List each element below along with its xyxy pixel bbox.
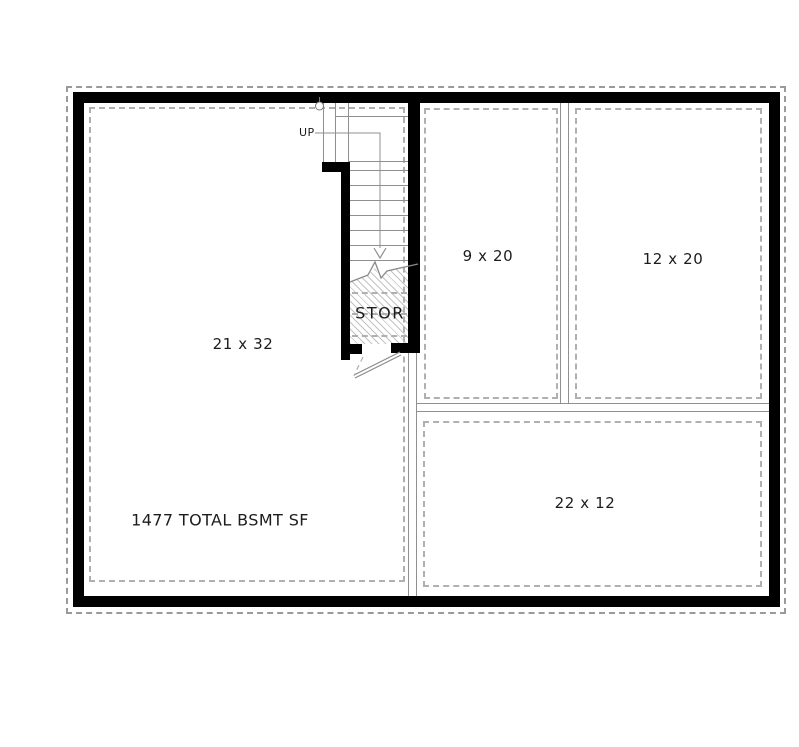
floor-plan-canvas: UP 21 x 32 STOR 9 x 20 12 x 20 22 x 12 1… [0,0,799,747]
up-arrow-head [374,248,386,258]
stair-break-line-icon [350,262,418,282]
up-arrow-line [315,133,380,248]
plan-linework-overlay [0,0,799,747]
storage-door-leaf [354,352,401,378]
storage-room-label: STOR [355,304,405,323]
main-room-label: 21 x 32 [213,335,274,353]
room-9x20-label: 9 x 20 [463,247,514,265]
stairs-up-label: UP [299,126,315,139]
total-basement-area-label: 1477 TOTAL BSMT SF [131,511,309,530]
fixture-circle-icon [316,97,324,110]
room-22x12-label: 22 x 12 [555,494,616,512]
room-12x20-label: 12 x 20 [643,250,704,268]
